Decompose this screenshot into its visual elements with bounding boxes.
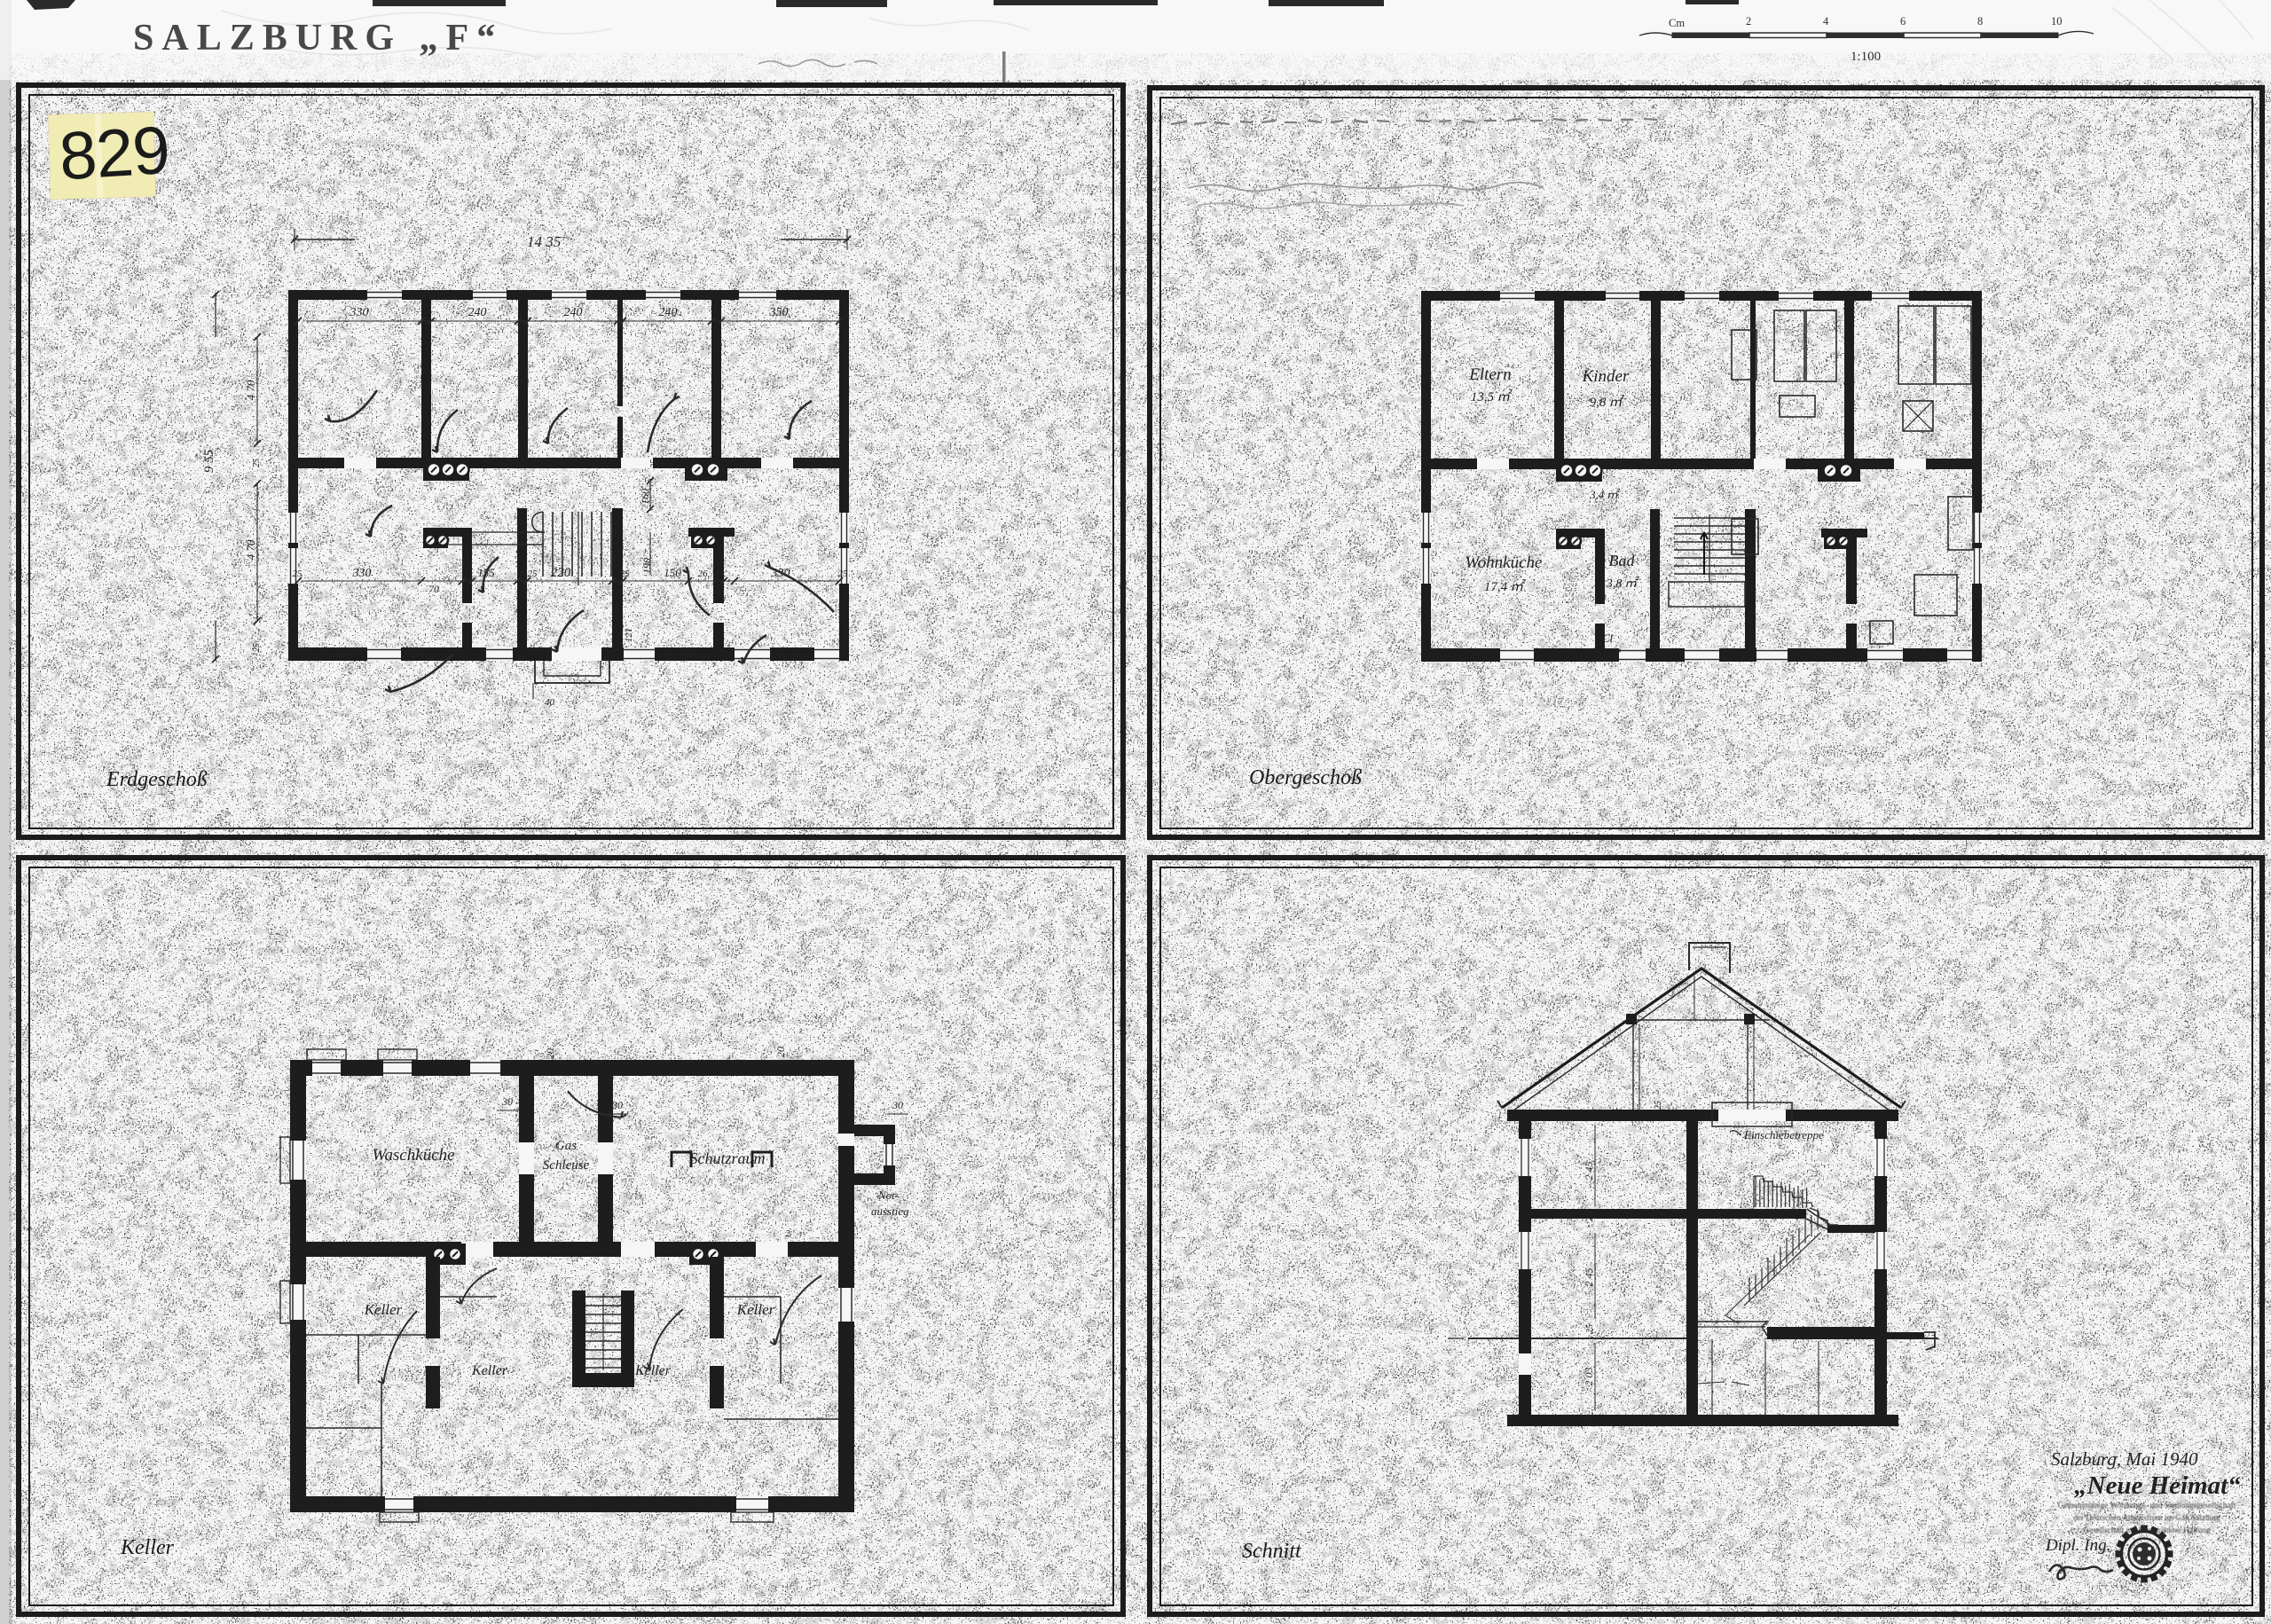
svg-text:20: 20: [544, 1048, 556, 1059]
svg-text:Gemeinnützige Wohnungs- und Si: Gemeinnützige Wohnungs- und Siedlungsges…: [2058, 1501, 2236, 1510]
svg-text:5: 5: [420, 308, 426, 318]
svg-text:10: 10: [2051, 15, 2063, 27]
svg-text:SALZBURG „F“: SALZBURG „F“: [133, 18, 503, 59]
svg-text:1:100: 1:100: [1851, 50, 1881, 64]
svg-text:„Neue Heimat“: „Neue Heimat“: [2074, 1471, 2241, 1500]
svg-text:25: 25: [1585, 1212, 1595, 1221]
svg-text:2: 2: [1746, 15, 1751, 27]
svg-text:25: 25: [1654, 1101, 1663, 1110]
svg-text:25: 25: [519, 308, 530, 318]
svg-text:Keller: Keller: [471, 1363, 508, 1378]
svg-text:8: 8: [1977, 15, 1983, 27]
svg-text:Keller: Keller: [364, 1301, 403, 1318]
svg-text:Waschküche: Waschküche: [372, 1146, 454, 1165]
svg-text:330: 330: [350, 306, 369, 319]
svg-text:0,9㎡: 0,9㎡: [1595, 648, 1622, 661]
svg-text:Cl: Cl: [1602, 632, 1614, 645]
svg-text:26: 26: [698, 569, 709, 579]
svg-text:2 45: 2 45: [1583, 1268, 1595, 1287]
svg-text:Gas: Gas: [555, 1139, 577, 1153]
svg-text:160: 160: [639, 489, 651, 505]
svg-text:2 45: 2 45: [1583, 1162, 1595, 1181]
svg-text:25: 25: [528, 569, 538, 579]
svg-text:Cm: Cm: [1669, 17, 1685, 29]
svg-text:3,4 ㎡: 3,4 ㎡: [1589, 488, 1621, 501]
svg-text:5: 5: [712, 308, 718, 318]
svg-text:der Deutschen Arbeitsfront im: der Deutschen Arbeitsfront im Gau Salzbu…: [2073, 1513, 2220, 1523]
svg-text:25: 25: [252, 459, 262, 467]
svg-text:Eltern: Eltern: [1468, 365, 1512, 384]
svg-text:6: 6: [1900, 15, 1906, 27]
svg-text:13,5 ㎡: 13,5 ㎡: [1471, 388, 1513, 404]
svg-text:30: 30: [892, 1099, 903, 1111]
svg-text:150: 150: [664, 566, 681, 579]
svg-text:25: 25: [838, 569, 849, 579]
svg-text:4: 4: [1823, 15, 1829, 27]
svg-text:9,8 ㎡: 9,8 ㎡: [1590, 394, 1625, 410]
svg-text:Not-: Not-: [877, 1189, 899, 1202]
svg-text:70: 70: [713, 583, 724, 595]
svg-text:Kinder: Kinder: [1582, 367, 1630, 386]
svg-text:4 70: 4 70: [244, 539, 257, 560]
svg-text:40: 40: [545, 697, 555, 708]
svg-text:Dipl. Ing.: Dipl. Ing.: [2045, 1536, 2110, 1555]
svg-text:9 55: 9 55: [202, 449, 216, 473]
svg-text:2 03: 2 03: [1583, 1368, 1595, 1386]
svg-text:4 70: 4 70: [244, 380, 257, 400]
svg-text:25: 25: [293, 569, 303, 579]
svg-text:Schutzraum: Schutzraum: [690, 1149, 766, 1167]
svg-text:190: 190: [640, 558, 653, 574]
svg-text:Schnitt: Schnitt: [1242, 1540, 1302, 1563]
svg-text:70: 70: [428, 583, 439, 595]
svg-text:Wohnküche: Wohnküche: [1466, 553, 1543, 572]
svg-text:240: 240: [659, 306, 678, 319]
svg-text:20: 20: [774, 1047, 787, 1057]
svg-text:121: 121: [624, 628, 634, 643]
svg-text:Erdgeschoß: Erdgeschoß: [106, 768, 208, 791]
svg-text:Bad: Bad: [1609, 552, 1636, 569]
svg-text:17,4 ㎡: 17,4 ㎡: [1484, 578, 1526, 594]
svg-text:25: 25: [1585, 1324, 1595, 1333]
svg-text:5: 5: [617, 308, 622, 318]
svg-text:25: 25: [288, 308, 299, 318]
svg-text:240: 240: [468, 306, 487, 319]
svg-text:Keller: Keller: [634, 1363, 672, 1378]
svg-text:Einschiebetreppe: Einschiebetreppe: [1743, 1128, 1824, 1142]
svg-text:30: 30: [611, 1099, 623, 1111]
svg-text:10: 10: [1585, 1418, 1595, 1427]
svg-text:Salzburg, Mai 1940: Salzburg, Mai 1940: [2051, 1448, 2198, 1470]
svg-text:2: 2: [785, 1228, 790, 1239]
svg-text:Keller: Keller: [736, 1301, 775, 1318]
svg-text:Schleuse: Schleuse: [543, 1158, 590, 1173]
svg-text:220: 220: [551, 566, 571, 580]
svg-text:Obergeschoß: Obergeschoß: [1249, 766, 1362, 789]
svg-text:14 35: 14 35: [527, 233, 561, 250]
svg-text:25: 25: [620, 569, 631, 579]
svg-text:25: 25: [838, 308, 849, 318]
svg-text:330: 330: [352, 567, 372, 580]
svg-text:25: 25: [252, 643, 262, 652]
svg-text:25: 25: [649, 459, 659, 468]
svg-text:30: 30: [501, 1095, 513, 1108]
svg-text:3,8 ㎡: 3,8 ㎡: [1606, 576, 1639, 591]
svg-text:350: 350: [769, 306, 789, 319]
svg-text:240: 240: [564, 306, 583, 319]
svg-text:ausstieg: ausstieg: [871, 1204, 909, 1218]
svg-text:Keller: Keller: [120, 1536, 175, 1559]
